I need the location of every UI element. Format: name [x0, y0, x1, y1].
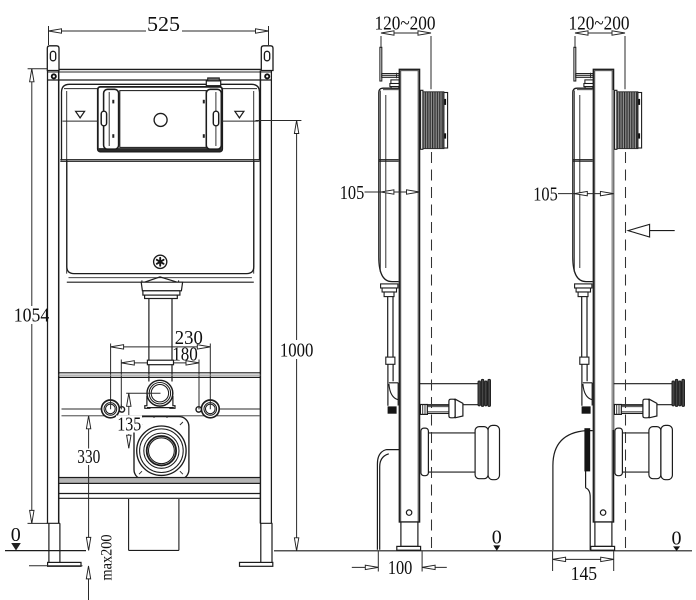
- svg-text:max200: max200: [99, 535, 116, 581]
- svg-text:135: 135: [117, 414, 141, 436]
- svg-text:525: 525: [147, 12, 180, 36]
- svg-text:120~200: 120~200: [375, 13, 436, 35]
- svg-text:0: 0: [11, 524, 21, 546]
- svg-text:105: 105: [533, 183, 558, 205]
- svg-text:180: 180: [172, 344, 198, 366]
- svg-text:1054: 1054: [14, 305, 50, 327]
- svg-text:1000: 1000: [280, 340, 314, 362]
- svg-text:330: 330: [77, 446, 100, 468]
- svg-text:145: 145: [571, 563, 598, 585]
- svg-text:120~200: 120~200: [569, 13, 630, 35]
- svg-text:100: 100: [388, 557, 413, 579]
- svg-text:105: 105: [340, 182, 365, 204]
- svg-text:0: 0: [492, 527, 502, 549]
